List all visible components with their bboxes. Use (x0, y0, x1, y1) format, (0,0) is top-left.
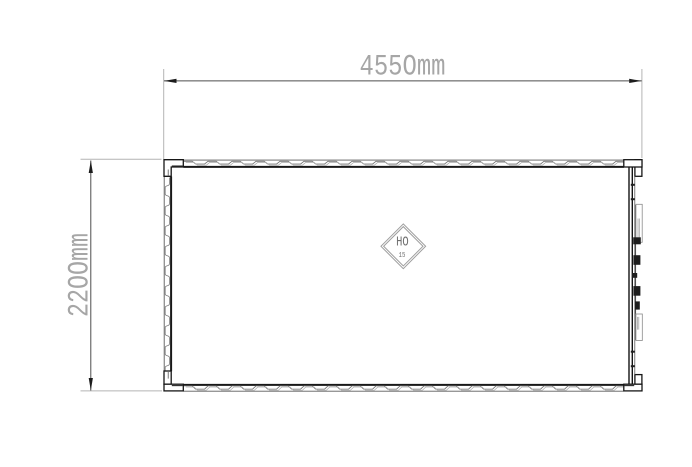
svg-text:455Omm: 455Omm (360, 49, 446, 83)
svg-text:15: 15 (399, 252, 406, 260)
svg-text:HO: HO (396, 235, 409, 251)
svg-text:22OOmm: 22OOmm (62, 233, 96, 317)
